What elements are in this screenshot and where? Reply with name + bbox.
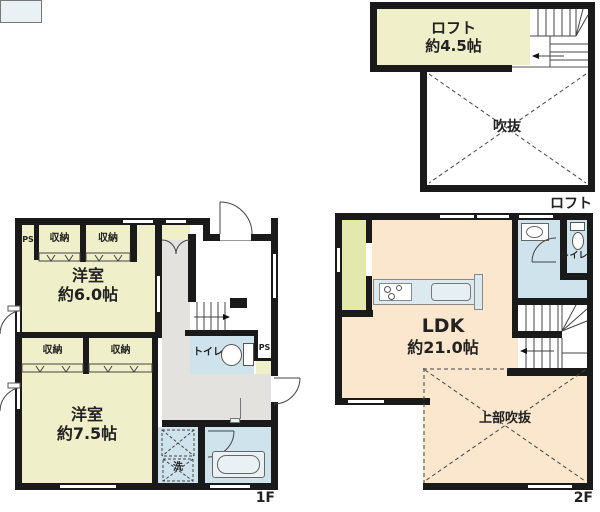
window <box>440 213 474 220</box>
window <box>166 218 186 225</box>
upper-void-label: 上部吹抜 <box>453 410 557 427</box>
ldk-name: LDK <box>422 315 465 338</box>
washbasin-stub <box>230 418 240 423</box>
window <box>528 483 572 490</box>
loft-room-size: 約4.5帖 <box>425 37 482 55</box>
sliding-door <box>155 276 162 312</box>
side-door-icon <box>272 372 302 404</box>
storage-closet <box>342 220 366 310</box>
bathtub-inner <box>217 455 260 474</box>
door-swing-icon <box>0 306 20 336</box>
duct-space <box>256 361 271 374</box>
washbasin-divider <box>240 398 241 419</box>
window <box>519 213 553 220</box>
kitchen-counter-end <box>474 274 483 310</box>
loft-floor-label: ロフト <box>530 193 592 213</box>
floorplan-canvas: ロフト 約4.5帖 吹抜 ロフト <box>0 0 600 512</box>
room-name: 洋室 <box>71 405 103 424</box>
f2-floor-label: 2F <box>548 490 593 506</box>
wall <box>162 420 271 427</box>
wall <box>185 330 258 336</box>
stairs-icon <box>190 302 232 330</box>
room-size: 約6.0帖 <box>58 285 118 304</box>
wall <box>420 65 427 192</box>
wall <box>560 220 567 273</box>
window <box>271 254 278 298</box>
window <box>210 483 250 490</box>
stove-burner <box>384 286 391 293</box>
stove-burner <box>396 285 402 291</box>
wall <box>560 273 587 280</box>
closet-door-icon <box>22 364 83 374</box>
room-label: 洋室 約7.5帖 <box>28 400 146 448</box>
room-label: 洋室 約6.0帖 <box>30 262 146 308</box>
wall <box>420 185 595 192</box>
kitchen-sink-icon <box>431 283 471 301</box>
laundry-label: 洗 <box>165 461 191 475</box>
wall <box>342 310 373 317</box>
loft-room-name: ロフト <box>431 19 476 37</box>
window <box>335 248 342 272</box>
closet-label: 収納 <box>22 340 83 362</box>
window <box>348 398 384 405</box>
sliding-door <box>366 243 372 276</box>
wall <box>254 358 271 361</box>
window <box>123 218 153 225</box>
wall <box>512 298 593 305</box>
f1-floor-label: 1F <box>233 490 275 506</box>
hall-closet <box>162 225 190 240</box>
toilet-bowl-icon <box>221 344 242 366</box>
closet-label: 収納 <box>89 340 152 362</box>
front-door-icon <box>216 200 256 238</box>
wall <box>588 2 595 192</box>
closet-door-icon <box>89 364 152 374</box>
stairs-icon <box>518 305 587 368</box>
toilet-bowl-icon <box>572 232 584 250</box>
arch-opening-icon <box>162 240 190 255</box>
wall <box>370 2 595 9</box>
washroom <box>565 280 587 298</box>
washroom-door-icon <box>531 237 558 264</box>
wall <box>15 218 22 490</box>
toilet-label: トイレ <box>559 250 589 262</box>
hallway <box>190 374 271 420</box>
room-name: 洋室 <box>72 266 104 285</box>
wall <box>370 65 512 72</box>
loft-stairs-icon <box>530 9 588 67</box>
void-label: 吹抜 <box>457 118 557 136</box>
window <box>60 483 116 490</box>
wall <box>335 213 342 405</box>
room-size: 約7.5帖 <box>57 424 117 443</box>
toilet-tank-icon <box>570 222 585 231</box>
ldk-size: 約21.0帖 <box>407 338 478 357</box>
washbasin-icon <box>0 0 42 23</box>
wall <box>370 2 377 72</box>
wall <box>230 298 247 308</box>
ldk-label: LDK 約21.0帖 <box>378 312 508 360</box>
pipe-space-right: PS <box>258 337 271 358</box>
loft-room-label: ロフト 約4.5帖 <box>377 12 530 62</box>
closet-label: 収納 <box>86 227 130 251</box>
stove-burner <box>388 293 395 300</box>
closet-label: 収納 <box>39 227 80 251</box>
pipe-space-left: PS <box>22 225 34 255</box>
window <box>477 213 509 220</box>
door-swing-icon <box>0 383 20 413</box>
wall <box>152 332 158 483</box>
toilet-label: トイレ <box>192 346 224 360</box>
wall <box>130 225 137 262</box>
wall <box>198 427 205 483</box>
toilet-tank-icon <box>243 343 254 366</box>
